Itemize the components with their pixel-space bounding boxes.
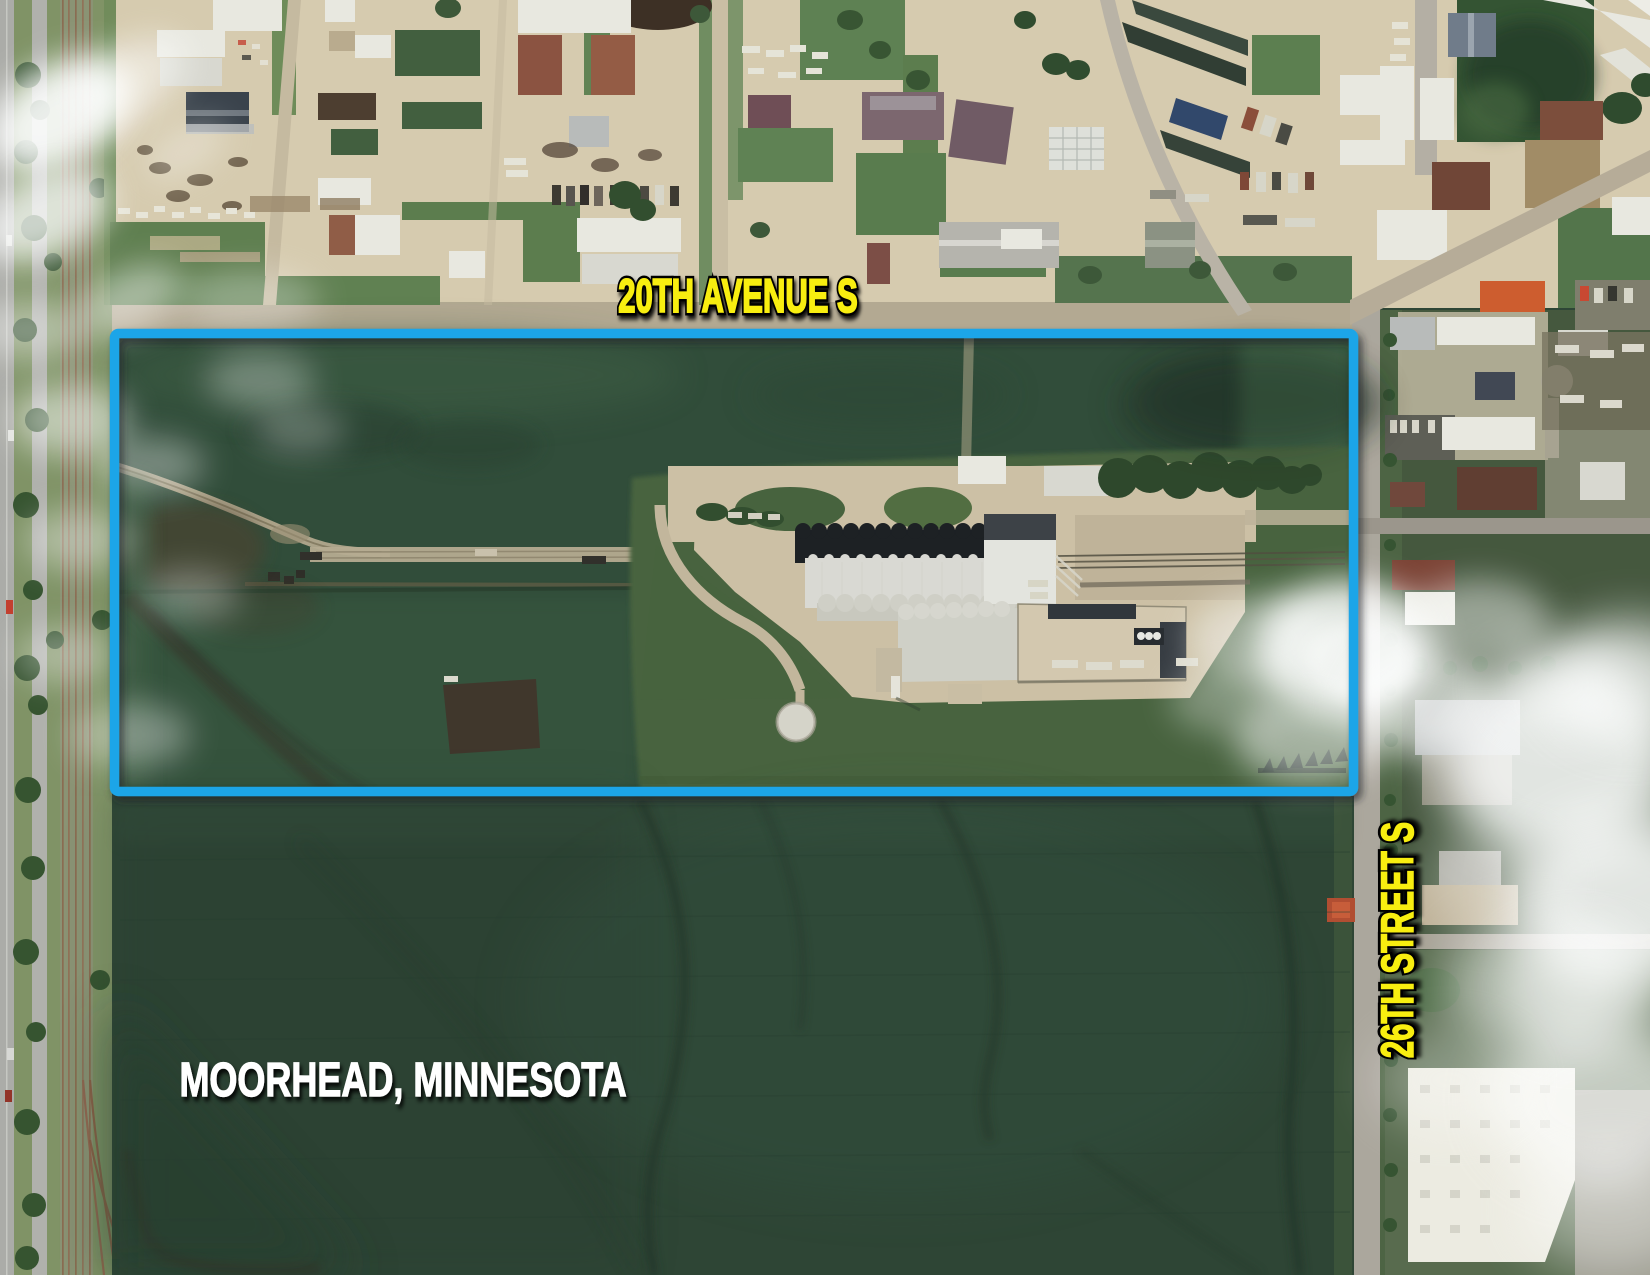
svg-text:20TH AVENUE S: 20TH AVENUE S [618,271,857,323]
svg-text:MOORHEAD, MINNESOTA: MOORHEAD, MINNESOTA [179,1053,626,1106]
svg-text:26TH STREET S: 26TH STREET S [1373,822,1423,1058]
